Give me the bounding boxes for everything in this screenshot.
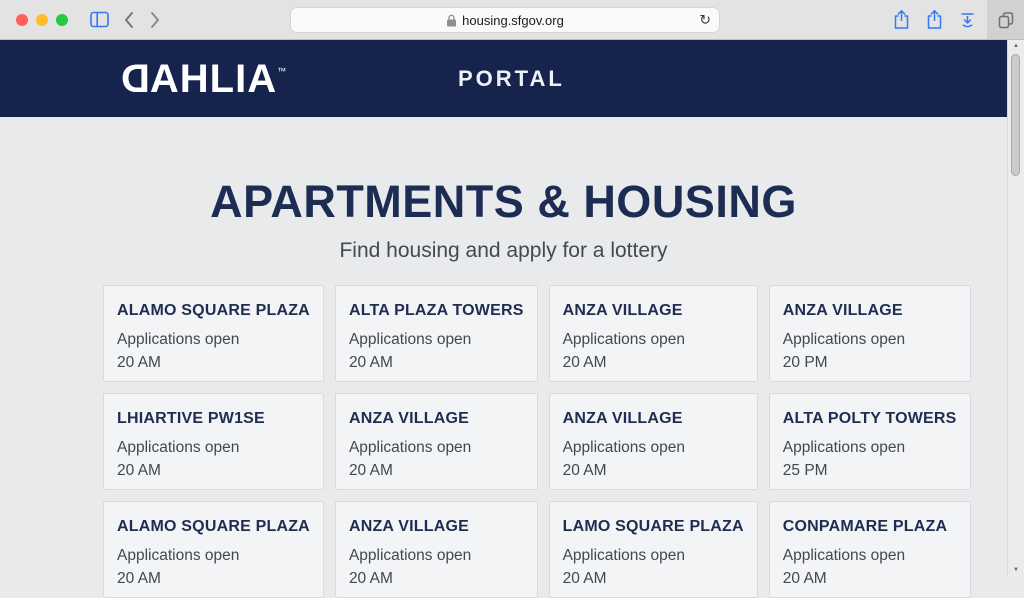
listing-time: 20 AM: [117, 354, 310, 372]
fullscreen-window-button[interactable]: [56, 14, 68, 26]
listing-time: 20 AM: [117, 570, 310, 588]
dahlia-logo-d: D: [120, 59, 150, 99]
window-controls: [16, 14, 68, 26]
trademark-mark: ™: [277, 66, 286, 76]
browser-toolbar: housing.sfgov.org ↻: [0, 0, 1024, 40]
listing-card[interactable]: LAMO SQUARE PLAZA Applications open 20 A…: [549, 501, 758, 598]
tab-overview-area: [987, 0, 1024, 39]
lock-icon: [446, 14, 457, 27]
share-icon: [892, 9, 911, 30]
page-subtitle: Find housing and apply for a lottery: [0, 239, 1007, 263]
url-text: housing.sfgov.org: [462, 13, 564, 28]
listing-status: Applications open: [349, 439, 524, 457]
listing-status: Applications open: [117, 331, 310, 349]
close-window-button[interactable]: [16, 14, 28, 26]
scroll-up-arrow[interactable]: ▲: [1008, 42, 1024, 50]
scroll-down-arrow[interactable]: ▼: [1008, 566, 1024, 574]
chevron-left-icon: [123, 11, 135, 29]
back-button[interactable]: [123, 11, 135, 29]
address-bar[interactable]: housing.sfgov.org ↻: [290, 7, 720, 33]
page-content: APARTMENTS & HOUSING Find housing and ap…: [0, 177, 1007, 598]
listing-card[interactable]: LHIARTIVE PW1SE Applications open 20 AM: [103, 393, 324, 490]
listing-card[interactable]: ANZA VILLAGE Applications open 20 AM: [549, 393, 758, 490]
listing-card[interactable]: ANZA VILLAGE Applications open 20 AM: [335, 393, 538, 490]
listing-card[interactable]: ALAMO SQUARE PLAZA Applications open 20 …: [103, 285, 324, 382]
listing-time: 20 AM: [563, 570, 744, 588]
listing-name: LHIARTIVE PW1SE: [117, 410, 310, 428]
copy-tabs-icon: [996, 10, 1016, 30]
sidebar-icon: [90, 11, 109, 28]
listing-time: 20 PM: [783, 354, 957, 372]
sidebar-toggle-button[interactable]: [90, 11, 109, 28]
downloads-button[interactable]: [951, 10, 984, 29]
listing-time: 20 AM: [349, 570, 524, 588]
listing-name: ANZA VILLAGE: [563, 410, 744, 428]
listing-status: Applications open: [349, 547, 524, 565]
chevron-right-icon: [149, 11, 161, 29]
listing-status: Applications open: [783, 331, 957, 349]
listing-status: Applications open: [563, 331, 744, 349]
share-button[interactable]: [885, 9, 918, 30]
listing-time: 20 AM: [349, 462, 524, 480]
listing-card[interactable]: ALAMO SQUARE PLAZA Applications open 20 …: [103, 501, 324, 598]
dahlia-logo-rest: AHLIA: [150, 57, 277, 101]
listing-name: ANZA VILLAGE: [349, 410, 524, 428]
listing-status: Applications open: [783, 439, 957, 457]
nav-portal-link[interactable]: PORTAL: [458, 68, 565, 90]
listing-status: Applications open: [117, 547, 310, 565]
listing-time: 20 AM: [563, 354, 744, 372]
listing-status: Applications open: [349, 331, 524, 349]
page-title: APARTMENTS & HOUSING: [0, 177, 1007, 227]
listing-name: ANZA VILLAGE: [349, 518, 524, 536]
listing-card[interactable]: ANZA VILLAGE Applications open 20 PM: [769, 285, 971, 382]
listing-name: ALAMO SQUARE PLAZA: [117, 518, 310, 536]
toolbar-right-icons: [885, 0, 1024, 39]
listings-grid: ALAMO SQUARE PLAZA Applications open 20 …: [103, 285, 904, 598]
copy-tabs-button[interactable]: [989, 10, 1022, 30]
listing-status: Applications open: [563, 439, 744, 457]
scrollbar-thumb[interactable]: [1011, 54, 1020, 176]
downloads-icon: [958, 10, 977, 29]
page-scrollbar[interactable]: ▲ ▼: [1007, 40, 1024, 576]
listing-name: ANZA VILLAGE: [783, 302, 957, 320]
reload-button[interactable]: ↻: [699, 12, 711, 29]
listing-card[interactable]: ANZA VILLAGE Applications open 20 AM: [335, 501, 538, 598]
share-icon: [925, 9, 944, 30]
listing-name: ALAMO SQUARE PLAZA: [117, 302, 310, 320]
listing-card[interactable]: CONPAMARE PLAZA Applications open 20 AM: [769, 501, 971, 598]
listing-status: Applications open: [783, 547, 957, 565]
listing-name: ALTA POLTY TOWERS: [783, 410, 957, 428]
listing-card[interactable]: ANZA VILLAGE Applications open 20 AM: [549, 285, 758, 382]
share-button-secondary[interactable]: [918, 9, 951, 30]
dahlia-logo[interactable]: DAHLIA™: [120, 59, 286, 99]
minimize-window-button[interactable]: [36, 14, 48, 26]
listing-name: CONPAMARE PLAZA: [783, 518, 957, 536]
forward-button[interactable]: [149, 11, 161, 29]
listing-time: 20 AM: [563, 462, 744, 480]
listing-time: 20 AM: [117, 462, 310, 480]
listing-name: LAMO SQUARE PLAZA: [563, 518, 744, 536]
listing-time: 25 PM: [783, 462, 957, 480]
listing-card[interactable]: ALTA PLAZA TOWERS Applications open 20 A…: [335, 285, 538, 382]
listing-name: ALTA PLAZA TOWERS: [349, 302, 524, 320]
listing-time: 20 AM: [783, 570, 957, 588]
listing-time: 20 AM: [349, 354, 524, 372]
listing-name: ANZA VILLAGE: [563, 302, 744, 320]
listing-card[interactable]: ALTA POLTY TOWERS Applications open 25 P…: [769, 393, 971, 490]
site-header: DAHLIA™ PORTAL: [0, 40, 1007, 117]
listing-status: Applications open: [563, 547, 744, 565]
listing-status: Applications open: [117, 439, 310, 457]
